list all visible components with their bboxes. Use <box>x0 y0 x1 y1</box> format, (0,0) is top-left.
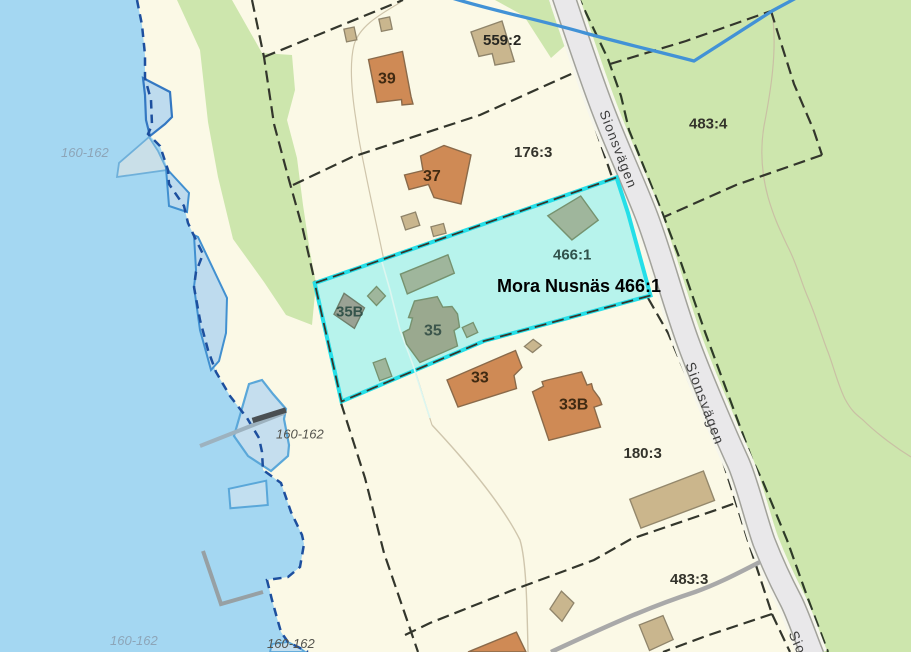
svg-text:37: 37 <box>423 168 441 185</box>
svg-text:483:4: 483:4 <box>689 116 728 133</box>
svg-text:35B: 35B <box>336 304 364 321</box>
svg-text:160-162: 160-162 <box>267 636 315 651</box>
svg-text:180:3: 180:3 <box>624 445 662 462</box>
svg-text:176:3: 176:3 <box>514 144 552 161</box>
svg-text:160-162: 160-162 <box>276 427 324 442</box>
svg-text:559:2: 559:2 <box>483 32 521 49</box>
svg-text:466:1: 466:1 <box>553 247 591 264</box>
svg-text:Mora Nusnäs 466:1: Mora Nusnäs 466:1 <box>497 276 661 296</box>
svg-text:483:3: 483:3 <box>670 571 708 588</box>
svg-text:160-162: 160-162 <box>110 633 158 648</box>
svg-text:39: 39 <box>378 71 396 88</box>
svg-text:160-162: 160-162 <box>61 145 109 160</box>
svg-text:35: 35 <box>424 323 442 340</box>
svg-text:33B: 33B <box>559 397 588 414</box>
svg-text:33: 33 <box>471 370 489 387</box>
